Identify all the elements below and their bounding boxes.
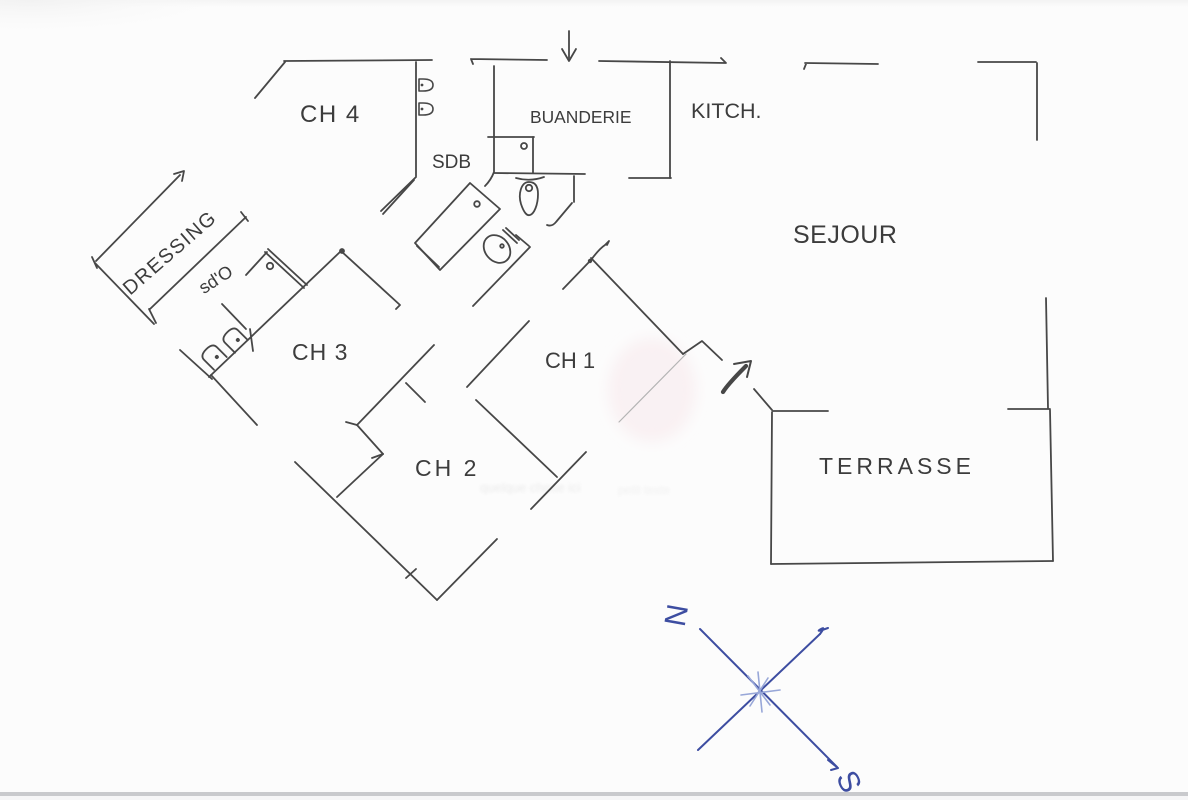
svg-text:petit texte: petit texte — [618, 483, 670, 497]
svg-text:quelque chose ici: quelque chose ici — [480, 480, 581, 495]
